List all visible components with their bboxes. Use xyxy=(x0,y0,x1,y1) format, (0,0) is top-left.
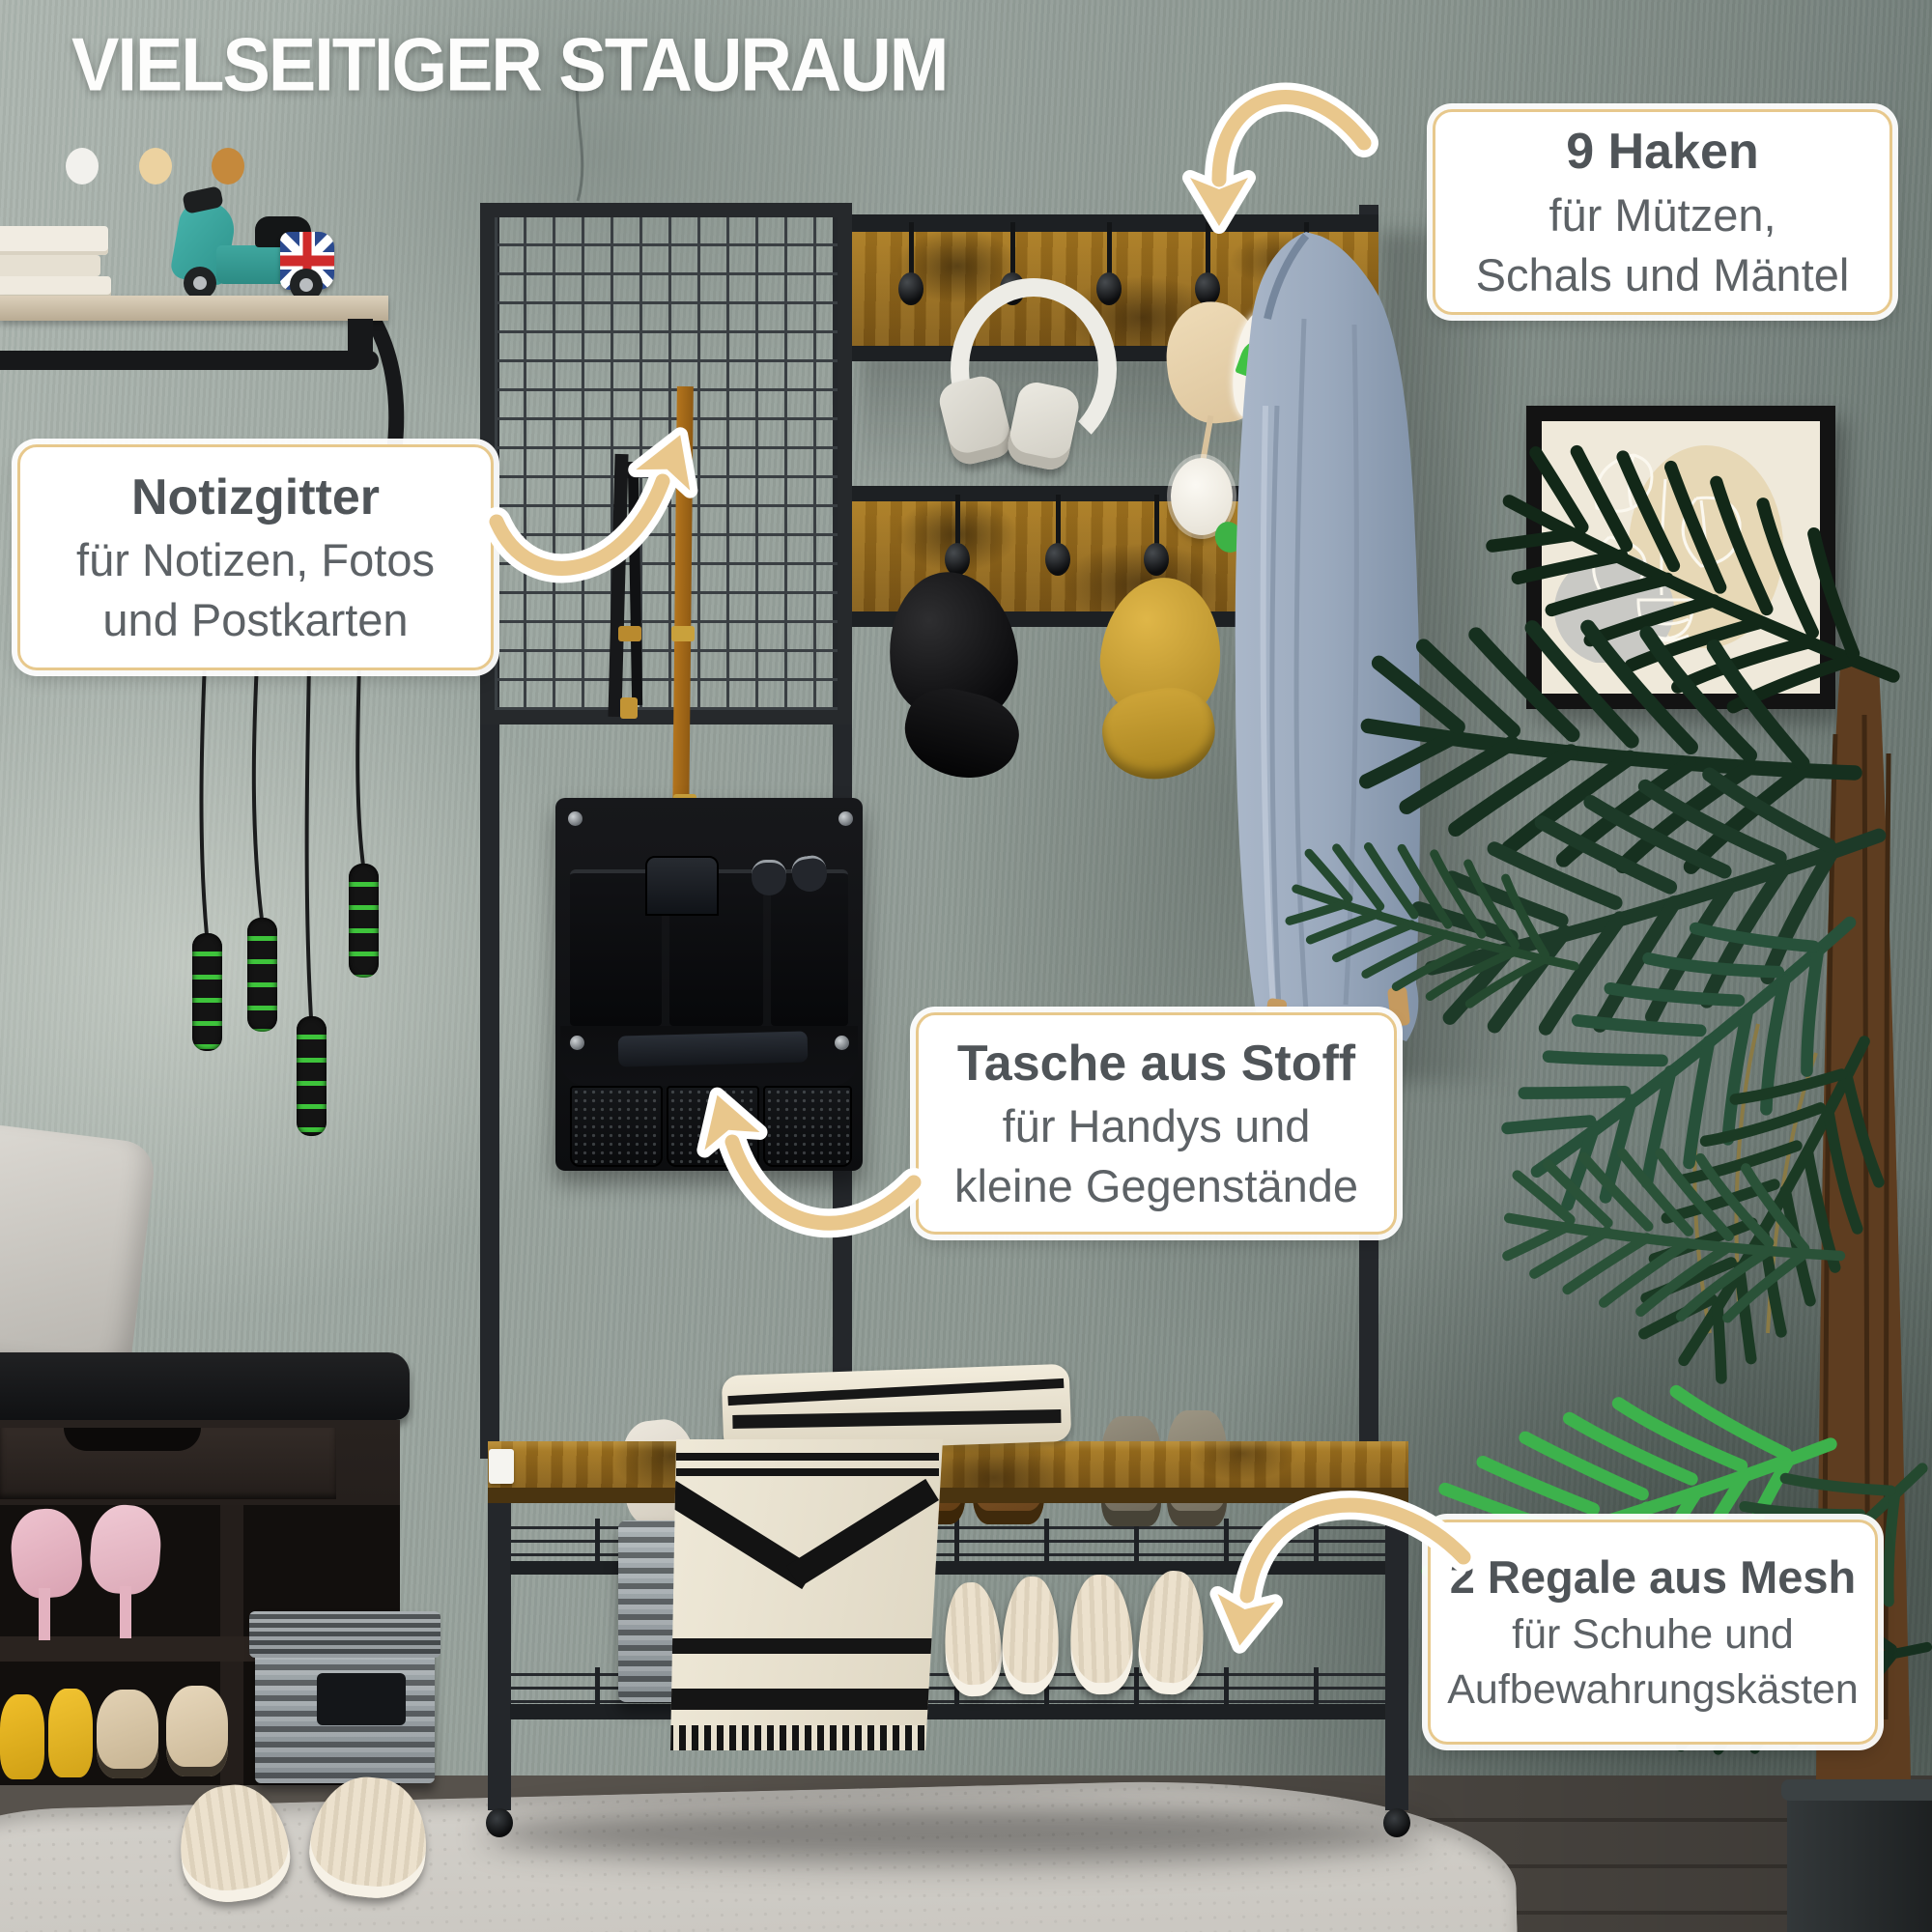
callout-notizgitter-line1: für Notizen, Fotos xyxy=(76,530,435,590)
wicker-storage-box xyxy=(255,1611,435,1783)
callout-notizgitter: Notizgitter für Notizen, Fotos und Postk… xyxy=(17,444,494,670)
coat-hook xyxy=(1304,222,1309,278)
sunglasses xyxy=(752,850,833,898)
bench-foot xyxy=(1383,1808,1410,1837)
callout-tasche-line2: kleine Gegenstände xyxy=(954,1156,1358,1216)
callout-haken-title: 9 Haken xyxy=(1566,119,1758,185)
bench-leg xyxy=(488,1503,511,1810)
wall-shadow xyxy=(1379,232,1524,1082)
beige-flats xyxy=(97,1686,236,1780)
callout-notizgitter-title: Notizgitter xyxy=(131,465,380,531)
yellow-flats xyxy=(0,1689,97,1781)
bench-leg xyxy=(1385,1503,1408,1810)
coat-hook xyxy=(1010,222,1015,278)
callout-regale: 2 Regale aus Mesh für Schuhe und Aufbewa… xyxy=(1428,1520,1878,1745)
callout-regale-line1: für Schuhe und xyxy=(1512,1607,1794,1662)
bench-shadow xyxy=(483,1804,1430,1862)
memo-grid-panel xyxy=(480,203,852,724)
callout-tasche: Tasche aus Stoff für Handys und kleine G… xyxy=(916,1012,1397,1235)
jump-rope-handle xyxy=(247,918,277,1032)
plant-pot xyxy=(1787,1779,1932,1932)
wall-art-leaf-print xyxy=(1542,421,1789,663)
wall-shelf-books xyxy=(0,226,114,298)
bench-seat xyxy=(488,1441,1408,1490)
coat-hook xyxy=(909,222,914,278)
callout-regale-line2: Aufbewahrungskästen xyxy=(1447,1662,1859,1718)
page-title: VIELSEITIGER STAURAUM xyxy=(71,21,947,107)
wall-shelf-board xyxy=(0,296,388,321)
callout-haken: 9 Haken für Mützen, Schals und Mäntel xyxy=(1433,109,1892,315)
callout-tasche-title: Tasche aus Stoff xyxy=(957,1031,1355,1097)
wire-mesh xyxy=(495,217,838,710)
smartphone xyxy=(645,856,719,916)
toy-scooter xyxy=(166,189,330,303)
callout-tasche-line1: für Handys und xyxy=(1003,1096,1311,1156)
coat-hook xyxy=(1107,222,1112,278)
jump-rope-handle xyxy=(192,933,222,1051)
wall-shelf-rail xyxy=(0,351,379,370)
callout-haken-line1: für Mützen, xyxy=(1548,185,1776,245)
jump-rope-handle xyxy=(297,1016,327,1136)
rack-right-post xyxy=(1359,205,1378,1457)
bench-foot xyxy=(486,1808,513,1837)
tablet xyxy=(618,1031,809,1066)
jump-rope-handle xyxy=(349,864,379,978)
organizer-mesh-pocket xyxy=(570,1086,663,1167)
pink-heels xyxy=(8,1505,172,1642)
coat-hook xyxy=(1206,222,1210,278)
callout-haken-line2: Schals und Mäntel xyxy=(1476,245,1850,305)
drawer-handle-notch xyxy=(64,1428,201,1451)
organizer-mesh-pocket xyxy=(667,1086,759,1167)
color-dot-white xyxy=(66,148,99,185)
wall-art-frame xyxy=(1526,406,1835,709)
product-marketing-image: 9 Haken für Mützen, Schals und Mäntel No… xyxy=(0,0,1932,1932)
color-dot-sand xyxy=(139,148,172,185)
scarf-hanging xyxy=(665,1439,954,1750)
callout-notizgitter-line2: und Postkarten xyxy=(102,590,408,650)
organizer-mesh-pocket xyxy=(763,1086,852,1167)
callout-regale-title: 2 Regale aus Mesh xyxy=(1450,1548,1857,1607)
brand-label xyxy=(489,1449,514,1484)
bench-cushion xyxy=(0,1352,410,1420)
color-dot-caramel xyxy=(212,148,244,185)
